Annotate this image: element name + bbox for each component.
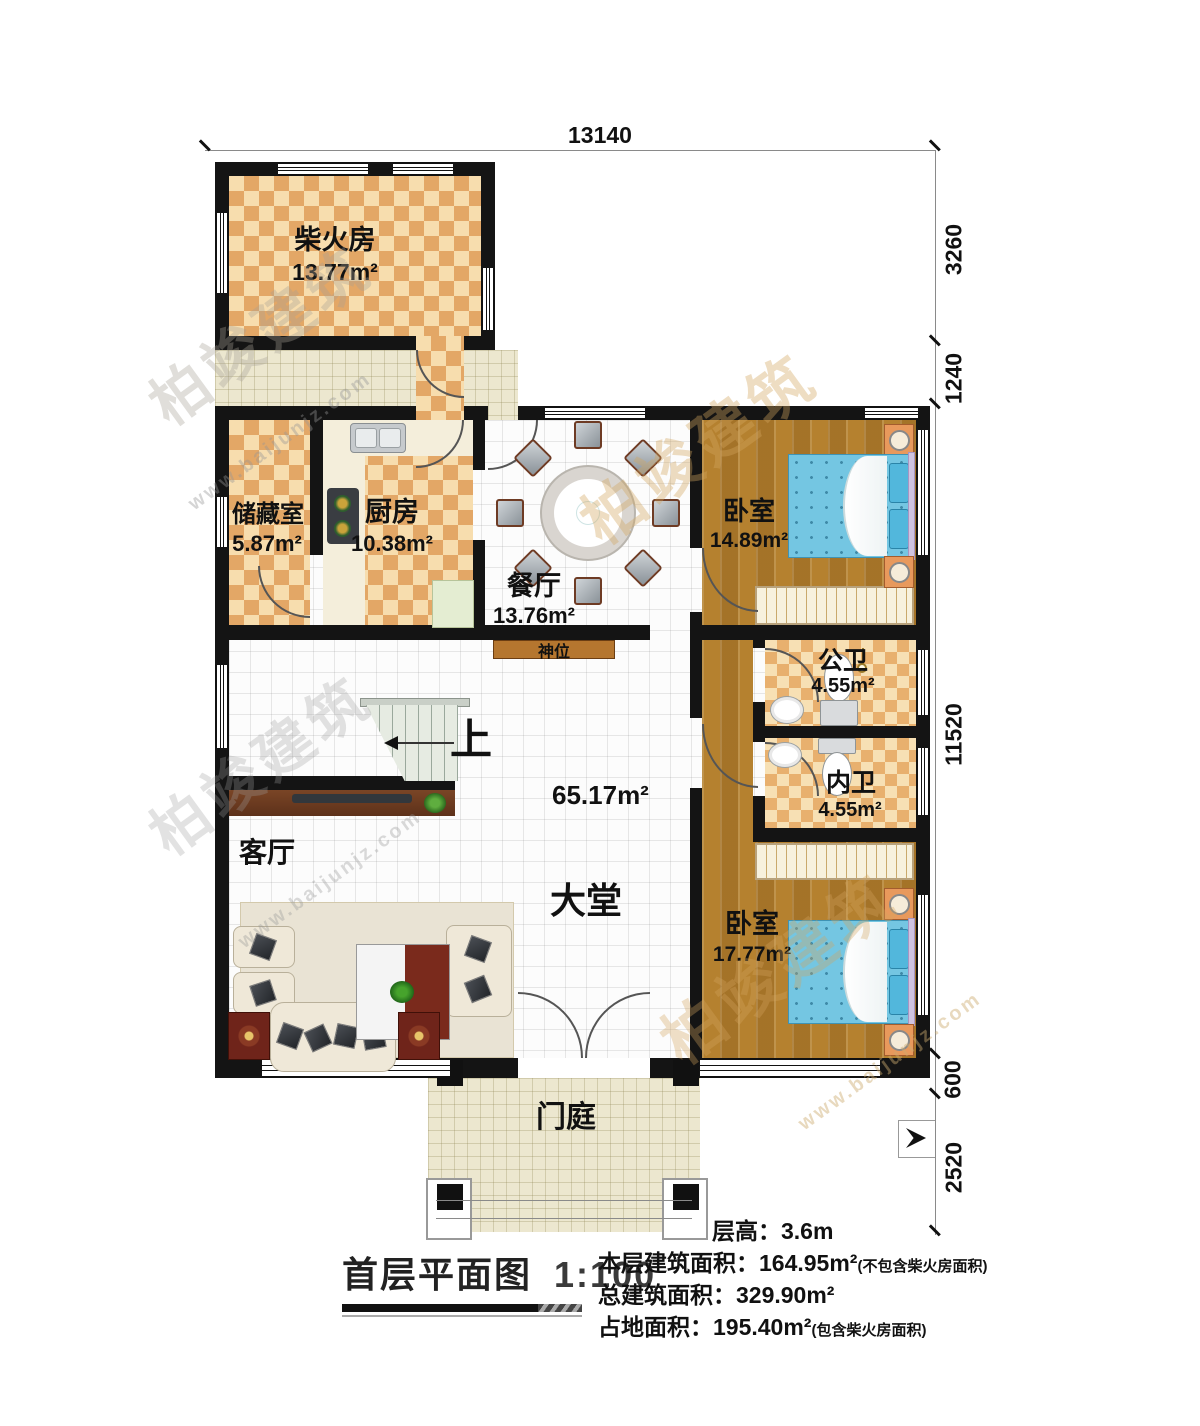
- room-label-storage: 储藏室: [220, 502, 316, 527]
- wall-segment: [464, 406, 488, 420]
- armchair: [233, 926, 295, 968]
- wall-segment: [215, 406, 416, 420]
- bed: [788, 920, 914, 1024]
- wall-segment: [473, 540, 485, 625]
- window: [865, 406, 918, 420]
- porch-step-line: [436, 1218, 692, 1219]
- wall-segment: [753, 828, 930, 842]
- title-underline-shadow: [342, 1315, 582, 1317]
- title-underline: [342, 1304, 538, 1312]
- bed-headboard: [908, 452, 915, 560]
- floor-plan-canvas: 神位: [0, 0, 1200, 1426]
- room-label-private-bath: 内卫: [818, 770, 884, 796]
- side-cabinet: [398, 1012, 440, 1060]
- stair-direction-line: [398, 742, 454, 744]
- room-label-living: 客厅: [232, 838, 302, 867]
- bed: [788, 454, 914, 558]
- dining-table-center: [576, 501, 600, 525]
- room-label-hall: 大堂: [544, 882, 628, 920]
- dimension-value-right: 2520: [941, 1138, 968, 1198]
- window: [215, 213, 229, 293]
- dining-chair: [574, 421, 602, 449]
- room-area-storage: 5.87m²: [214, 532, 320, 555]
- window: [916, 650, 930, 715]
- page-title: 首层平面图 1:100: [342, 1256, 592, 1294]
- window: [916, 895, 930, 1015]
- room-area-bedroom1: 14.89m²: [700, 530, 798, 552]
- window: [278, 162, 368, 176]
- room-area-firewood: 13.77m²: [255, 260, 415, 284]
- firewood-room-floor: [229, 176, 481, 336]
- wall-segment: [690, 788, 702, 1058]
- wall-segment: [473, 420, 485, 470]
- bedroom1-wardrobe: [755, 586, 914, 625]
- bathroom-sink: [770, 696, 804, 724]
- window: [481, 268, 495, 330]
- tv-screen: [292, 794, 412, 803]
- dining-chair: [496, 499, 524, 527]
- room-area-kitchen: 10.38m²: [330, 532, 454, 555]
- wall-segment: [753, 640, 765, 648]
- porch-column: [437, 1184, 463, 1210]
- dimension-value-right: 3260: [941, 220, 968, 280]
- porch-step-line: [436, 1200, 692, 1201]
- window: [916, 430, 930, 555]
- window: [700, 1058, 880, 1078]
- dimension-value-right: 600: [940, 1056, 967, 1104]
- room-label-dining: 餐厅: [492, 572, 576, 600]
- nightstand: [884, 888, 914, 920]
- summary-floor-height: 层高：3.6m: [712, 1212, 833, 1246]
- room-area-hall: 65.17m²: [552, 782, 648, 809]
- window: [545, 406, 645, 420]
- dining-chair: [652, 499, 680, 527]
- corridor-floor: [215, 350, 515, 406]
- bedroom2-wardrobe: [755, 843, 914, 880]
- kitchen-cabinet: [432, 580, 474, 628]
- summary-total-area: 总建筑面积：329.90m²: [598, 1276, 834, 1310]
- room-area-bedroom2: 17.77m²: [702, 944, 802, 966]
- room-area-dining: 13.76m²: [486, 604, 582, 627]
- dimension-value-top: 13140: [540, 122, 660, 149]
- plant-icon: [424, 793, 446, 813]
- room-label-bedroom1: 卧室: [712, 498, 786, 525]
- bathroom-sink: [768, 742, 802, 768]
- summary-site-area: 占地面积：195.40m²(包含柴火房面积): [598, 1308, 926, 1342]
- porch-column: [673, 1184, 699, 1210]
- kitchen-sink: [350, 423, 406, 453]
- nightstand: [884, 556, 914, 588]
- shrine-label: 神位: [538, 638, 570, 662]
- wall-segment: [753, 796, 765, 828]
- window: [916, 748, 930, 815]
- wall-segment: [690, 625, 930, 640]
- window: [393, 162, 453, 176]
- stair-arrow-icon: [384, 736, 398, 750]
- wall-segment: [464, 336, 495, 350]
- loveseat-sofa: [446, 925, 512, 1017]
- stairs-up-label: 上: [448, 718, 494, 762]
- dimension-line-top: [205, 150, 935, 151]
- dining-chair: [574, 577, 602, 605]
- summary-floor-area: 本层建筑面积：164.95m²(不包含柴火房面积): [598, 1244, 987, 1278]
- room-label-public-bath: 公卫: [810, 648, 876, 674]
- room-label-porch: 门庭: [530, 1102, 602, 1134]
- dimension-line-right: [935, 150, 936, 1235]
- wall-segment: [753, 726, 930, 738]
- bed-headboard: [908, 918, 915, 1026]
- room-label-bedroom2: 卧室: [714, 910, 790, 938]
- dimension-value-right: 1240: [941, 349, 968, 409]
- nightstand: [884, 1024, 914, 1056]
- dining-threshold-tile: [488, 350, 518, 420]
- wall-segment: [690, 420, 702, 548]
- room-area-public-bath: 4.55m²: [806, 676, 880, 697]
- toilet-tank: [820, 700, 858, 726]
- room-label-kitchen: 厨房: [340, 498, 444, 526]
- direction-marker: [898, 1120, 936, 1158]
- wall-segment: [215, 336, 416, 350]
- title-underline-accent: [538, 1304, 582, 1312]
- porch-column: [673, 1060, 699, 1086]
- dimension-value-right: 11520: [941, 698, 968, 772]
- window: [215, 665, 229, 748]
- side-cabinet: [228, 1012, 270, 1060]
- room-area-private-bath: 4.55m²: [810, 800, 890, 821]
- direction-marker-icon: [906, 1128, 926, 1148]
- shrine-shelf: 神位: [493, 640, 615, 659]
- room-label-firewood: 柴火房: [255, 226, 415, 254]
- page-title-text: 首层平面图: [342, 1254, 532, 1295]
